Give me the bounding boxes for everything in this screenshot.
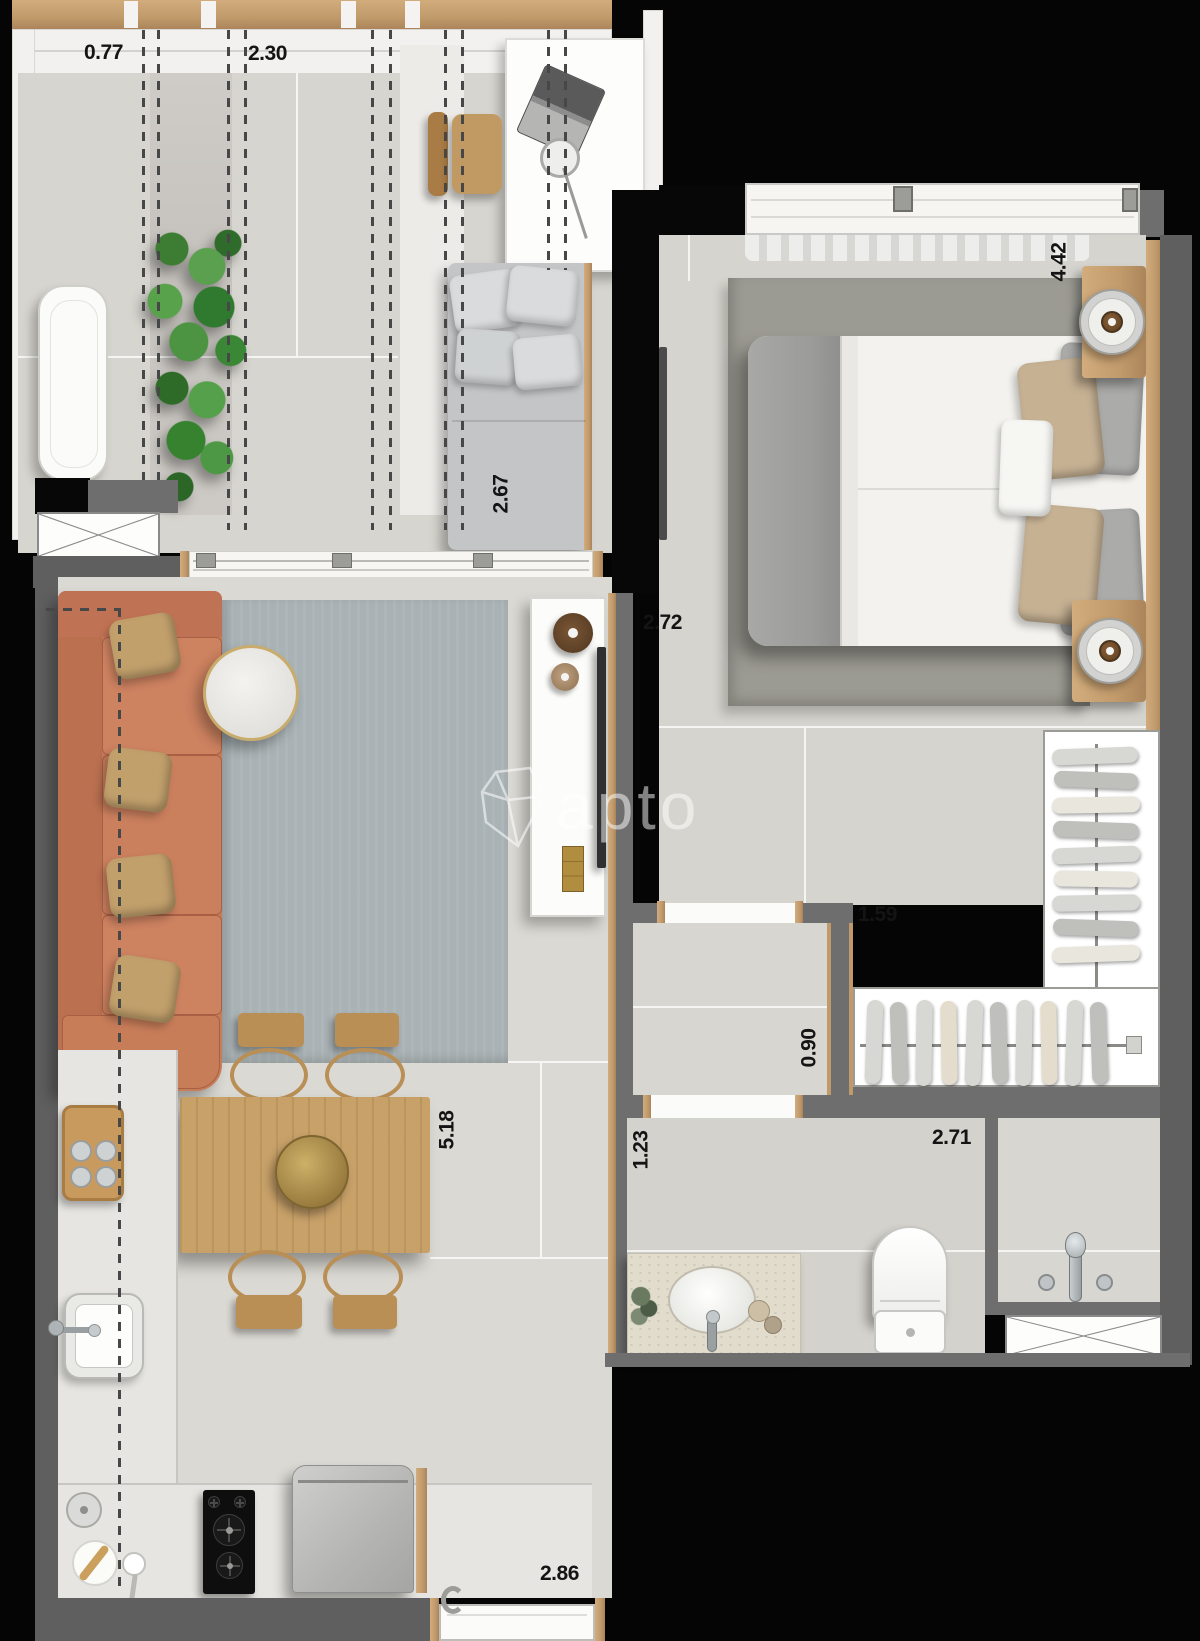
- sliding-door-rail: [193, 569, 589, 571]
- sofa-pillow: [105, 853, 177, 920]
- hanging-clothes-rack: [866, 1000, 1116, 1086]
- console-decor-dot: [568, 628, 578, 638]
- wall-block: [35, 478, 90, 514]
- shaft-box: [1005, 1315, 1162, 1357]
- projection-line: [547, 30, 550, 270]
- balcony-rail-gap: [201, 1, 216, 28]
- hall-top-wall: [633, 903, 660, 923]
- floor-grout: [540, 1063, 542, 1257]
- entry-door-line: [447, 1614, 587, 1616]
- toilet-button: [906, 1328, 915, 1337]
- floor-grout: [804, 728, 806, 905]
- dimension-label: 0.77: [84, 41, 123, 65]
- projection-line: [371, 30, 374, 530]
- cooktop-burner: [234, 1496, 246, 1508]
- hall-floor: [633, 923, 827, 1097]
- balcony-bench-line: [50, 300, 98, 468]
- desk-chair-seat: [452, 114, 502, 194]
- coffee-table: [203, 645, 299, 741]
- door-jamb: [795, 901, 803, 923]
- clothes-item: [1052, 845, 1141, 864]
- shower-divider-wall: [985, 1118, 998, 1302]
- bedroom-top-wall: [659, 185, 745, 237]
- tv-bedroom-icon: [659, 347, 667, 540]
- left-wall: [35, 585, 58, 1598]
- vanity-plant-decor: [628, 1282, 660, 1330]
- dimension-label: 2.30: [248, 42, 287, 66]
- door-jamb: [643, 1095, 651, 1118]
- dining-chair-seat: [333, 1295, 397, 1329]
- shower-mixer-knob: [1038, 1274, 1055, 1291]
- cup: [95, 1166, 117, 1188]
- ladle: [122, 1552, 146, 1576]
- kitchen-sink-basin: [75, 1304, 133, 1368]
- balcony-rail-gap: [124, 1, 138, 28]
- projection-line: [564, 30, 567, 270]
- projection-line: [389, 30, 392, 530]
- projection-line: [444, 30, 447, 530]
- window-handle: [893, 186, 913, 212]
- bedroom-window-line: [751, 216, 1134, 218]
- dimension-label: 2.67: [489, 475, 513, 514]
- shaft-box: [37, 512, 160, 558]
- cooktop-knob: [227, 1563, 233, 1569]
- projection-line: [46, 608, 120, 611]
- clothes-item: [1052, 747, 1139, 766]
- wall-segment: [88, 480, 178, 513]
- sliding-door-rail: [193, 560, 589, 562]
- table-centerpiece: [275, 1135, 349, 1209]
- dining-chair-seat: [335, 1013, 399, 1047]
- door-jamb: [595, 1598, 605, 1641]
- shower-mixer-knob: [1096, 1274, 1113, 1291]
- bed-crease: [858, 488, 1018, 490]
- sliding-door: [189, 551, 593, 579]
- bed-pillow: [998, 419, 1053, 517]
- dimension-label: 0.90: [797, 1029, 821, 1068]
- dimension-label: 1.59: [858, 903, 897, 927]
- curtain: [745, 235, 1090, 261]
- table-lamp-dot: [1106, 647, 1114, 655]
- refrigerator: [292, 1465, 414, 1593]
- daybed-frame: [584, 263, 592, 550]
- bedroom-window: [745, 183, 1140, 235]
- refrigerator-side-panel: [416, 1468, 427, 1593]
- clothes-item: [965, 1000, 984, 1087]
- floor-grout: [688, 235, 690, 281]
- pot-lid-knob: [80, 1506, 88, 1514]
- floor-grout: [633, 1006, 827, 1008]
- bedroom-door-opening: [665, 903, 795, 923]
- balcony-top-rail: [12, 0, 612, 31]
- daybed-pillow: [454, 328, 522, 386]
- projection-line: [118, 608, 121, 1593]
- dimension-label: 5.18: [435, 1111, 459, 1150]
- sliding-door-handle: [196, 553, 216, 568]
- cup: [70, 1166, 92, 1188]
- floor-grout: [508, 1061, 612, 1063]
- floor-plan: 0.77 2.30 2.67: [0, 0, 1200, 1641]
- kitchen-faucet-spout: [88, 1324, 101, 1337]
- hall-right-wall: [827, 923, 853, 1097]
- sliding-door-handle: [332, 553, 352, 568]
- refrigerator-handle: [298, 1480, 408, 1483]
- entry-door: [439, 1604, 595, 1641]
- floor-grout: [659, 726, 1146, 728]
- clothes-item: [890, 1002, 909, 1085]
- daybed-pillow: [512, 333, 584, 391]
- bed-sheet-fold: [840, 336, 858, 646]
- cooktop-burner: [208, 1496, 220, 1508]
- dimension-label: 2.71: [932, 1126, 971, 1150]
- daybed-seam: [452, 420, 586, 422]
- watermark: apto: [470, 752, 750, 862]
- balcony-rail-gap: [341, 1, 356, 28]
- clothes-item: [1090, 1002, 1109, 1085]
- toilet-bowl: [872, 1226, 948, 1322]
- dining-chair-seat: [236, 1295, 302, 1329]
- clothes-item: [1054, 771, 1139, 790]
- door-jamb: [657, 901, 665, 923]
- table-lamp-dot: [1108, 318, 1116, 326]
- dimension-label: 2.86: [540, 1562, 579, 1586]
- projection-line: [227, 30, 230, 530]
- projection-line: [157, 30, 160, 530]
- hanging-clothes-rack: [1052, 748, 1140, 972]
- clothes-item: [990, 1002, 1009, 1085]
- clothes-item: [915, 1000, 932, 1086]
- vanity-soap-decor: [764, 1316, 782, 1334]
- clothes-item: [1053, 821, 1140, 840]
- watermark-gem-icon: [478, 766, 548, 850]
- dining-chair-back: [325, 1048, 405, 1102]
- projection-line: [142, 30, 145, 530]
- clothes-item: [1065, 1000, 1084, 1087]
- balcony-rail-gap: [405, 1, 420, 28]
- sink-faucet-knob: [706, 1310, 720, 1324]
- bedroom-window-line: [751, 199, 1134, 201]
- watermark-text: apto: [556, 768, 700, 844]
- clothes-item: [940, 1001, 957, 1085]
- balcony-right-wall: [643, 10, 663, 197]
- plant: [130, 220, 270, 510]
- console-decor-dot: [561, 673, 569, 681]
- clothes-item: [1052, 796, 1140, 814]
- shower-mixer-head: [1065, 1232, 1086, 1258]
- kitchen-faucet-base: [48, 1320, 64, 1336]
- cup: [70, 1140, 92, 1162]
- clothes-item: [1052, 894, 1140, 912]
- center-wall-trim: [608, 593, 616, 1360]
- sofa-pillow: [103, 746, 174, 813]
- wardrobe-rail-bracket: [1126, 1036, 1142, 1054]
- sliding-door-handle: [473, 553, 493, 568]
- structural-column: [612, 190, 659, 593]
- dimension-label: 2.72: [643, 611, 682, 635]
- wall-segment: [1140, 190, 1164, 237]
- dimension-label: 1.23: [629, 1131, 653, 1170]
- floor-grout: [296, 73, 298, 356]
- hall-top-wall: [803, 903, 853, 923]
- clothes-item: [1040, 1001, 1057, 1085]
- clothes-item: [1053, 919, 1140, 938]
- bath-door-opening: [651, 1095, 795, 1118]
- clothes-item: [1015, 1000, 1032, 1086]
- window-handle: [1122, 188, 1138, 212]
- projection-line: [244, 30, 247, 530]
- dining-chair-back: [230, 1048, 308, 1102]
- door-jamb: [795, 1095, 803, 1118]
- clothes-item: [1054, 870, 1138, 887]
- wall-segment: [985, 1302, 1160, 1315]
- right-wall: [1160, 235, 1192, 1365]
- dimension-label: 4.42: [1047, 243, 1071, 282]
- bottom-wall: [35, 1598, 432, 1641]
- cooktop-knob: [226, 1527, 233, 1534]
- clothes-item: [865, 1000, 884, 1085]
- daybed-pillow: [505, 264, 580, 327]
- projection-line: [461, 30, 464, 530]
- cup: [95, 1140, 117, 1162]
- floor-grout: [430, 1257, 612, 1259]
- door-jamb: [430, 1598, 439, 1641]
- bed-blanket: [748, 336, 840, 646]
- entry-door-handle: [441, 1586, 465, 1614]
- bath-bottom-wall: [605, 1353, 1190, 1367]
- dining-chair-seat: [238, 1013, 304, 1047]
- clothes-item: [1052, 944, 1141, 963]
- desk-lamp-icon: [540, 138, 580, 178]
- toilet-seat-line: [880, 1300, 940, 1302]
